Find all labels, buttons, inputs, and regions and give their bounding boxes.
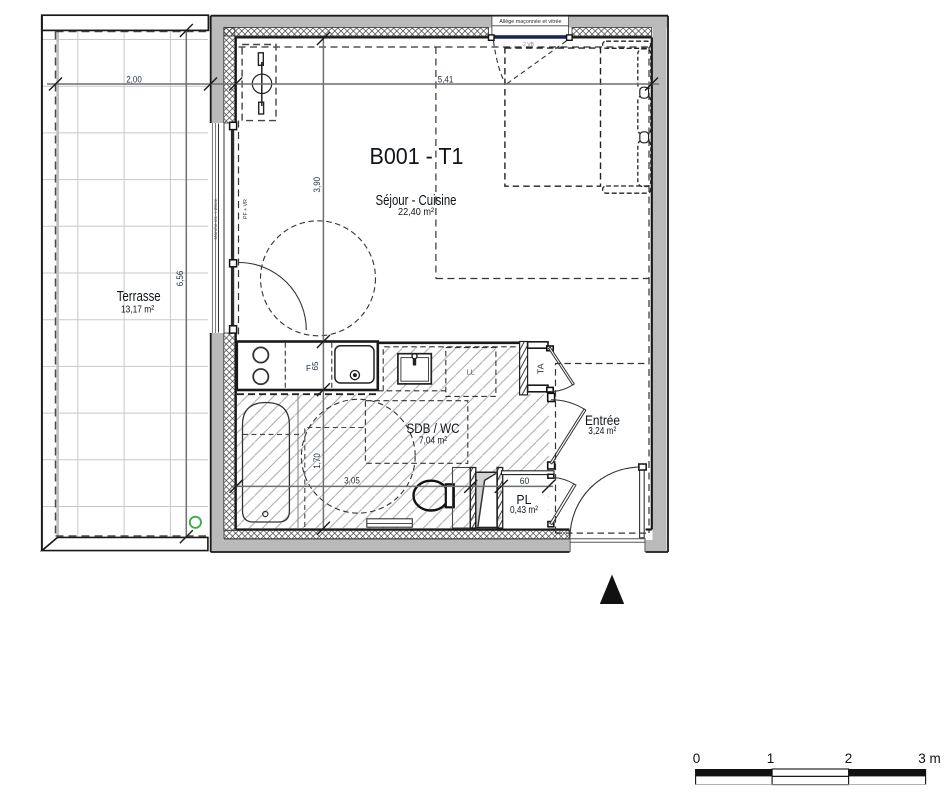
svg-text:60: 60 <box>520 476 530 487</box>
svg-text:13,17 m²: 13,17 m² <box>121 305 155 316</box>
svg-text:0: 0 <box>693 751 701 766</box>
svg-text:3,90: 3,90 <box>312 177 323 193</box>
svg-text:2,00: 2,00 <box>126 75 142 86</box>
svg-text:3 m: 3 m <box>918 751 941 766</box>
svg-text:7,04 m²: 7,04 m² <box>419 435 448 446</box>
svg-text:Marche int. < 20cm: Marche int. < 20cm <box>213 199 219 240</box>
svg-text:65: 65 <box>311 361 320 371</box>
svg-text:TA: TA <box>537 363 546 375</box>
svg-text:PF + VR: PF + VR <box>243 199 249 219</box>
svg-text:Terrasse: Terrasse <box>117 288 161 305</box>
svg-text:0,43 m²: 0,43 m² <box>510 505 539 516</box>
svg-text:B001 - T1: B001 - T1 <box>370 143 464 169</box>
svg-text:3,05: 3,05 <box>344 476 360 487</box>
svg-text:6,56: 6,56 <box>175 271 186 287</box>
svg-text:LL: LL <box>467 368 475 377</box>
svg-text:22,40 m²: 22,40 m² <box>398 207 435 218</box>
svg-text:3,24 m²: 3,24 m² <box>588 426 617 437</box>
svg-text:1: 1 <box>767 751 775 766</box>
svg-text:1,70: 1,70 <box>312 453 323 469</box>
svg-text:2: 2 <box>845 751 853 766</box>
svg-text:Allège maçonnée et vitrée: Allège maçonnée et vitrée <box>499 19 561 25</box>
svg-text:5,41: 5,41 <box>438 75 454 86</box>
svg-text:SDB / WC: SDB / WC <box>407 420 460 436</box>
